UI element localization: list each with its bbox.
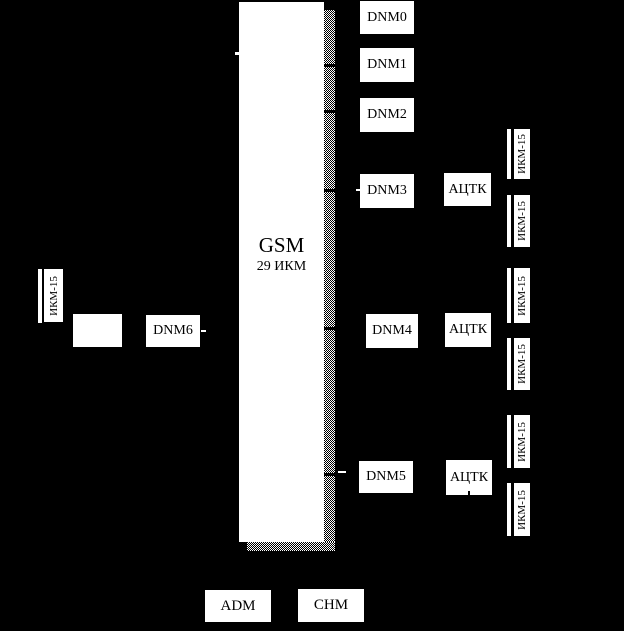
ikm15-label-2: ИКМ-15 <box>516 201 528 241</box>
ikm15-block-4: ИКМ-15 <box>514 338 530 390</box>
actk-block-3: АЦТК <box>446 460 492 495</box>
dnm2-block: DNM2 <box>360 98 414 132</box>
connector-mark-dnm5 <box>324 473 335 476</box>
ikm15-line-6 <box>507 483 511 536</box>
adm-block: ADM <box>205 590 271 622</box>
ikm15-block-1: ИКМ-15 <box>514 129 530 179</box>
block-diagram: GSM 29 ИКМ DNM0 DNM1 DNM2 DNM3 DNM4 DNM5… <box>0 0 624 631</box>
connector-mark-dnm4 <box>324 327 335 330</box>
connector-stub-actk3-bottom <box>468 491 470 496</box>
gsm-title: GSM <box>239 234 324 256</box>
dnm0-block: DNM0 <box>360 1 414 34</box>
connector-mark-dnm1 <box>324 64 335 67</box>
ikm15-line-5 <box>507 415 511 468</box>
ikm15-label-5: ИКМ-15 <box>516 422 528 462</box>
ikm15-label-1: ИКМ-15 <box>516 134 528 174</box>
ikm15-label-6: ИКМ-15 <box>516 490 528 530</box>
dnm1-block: DNM1 <box>360 48 414 82</box>
ikm15-label-3: ИКМ-15 <box>516 276 528 316</box>
unlabeled-block <box>73 314 122 347</box>
ikm15-line-3 <box>507 268 511 323</box>
ikm15-line-left <box>38 269 42 323</box>
gsm-shadow-right <box>324 10 335 551</box>
ikm15-block-left: ИКМ-15 <box>44 269 63 322</box>
ikm15-block-6: ИКМ-15 <box>514 483 530 536</box>
gsm-subtitle: 29 ИКМ <box>239 259 324 274</box>
chm-block: CHM <box>298 589 364 622</box>
connector-mark-dnm2 <box>324 110 335 113</box>
ikm15-label-left: ИКМ-15 <box>48 276 60 316</box>
ikm15-line-4 <box>507 338 511 390</box>
dnm4-block: DNM4 <box>366 314 418 348</box>
connector-stub-gsm-left <box>235 52 239 55</box>
connector-stub-dnm6-right <box>201 330 206 332</box>
ikm15-block-5: ИКМ-15 <box>514 415 530 468</box>
actk-block-1: АЦТК <box>444 173 491 206</box>
dnm3-block: DNM3 <box>360 174 414 208</box>
ikm15-line-1 <box>507 129 511 179</box>
gsm-block: GSM 29 ИКМ <box>239 2 324 542</box>
ikm15-block-3: ИКМ-15 <box>514 268 530 323</box>
dnm5-block: DNM5 <box>359 461 413 493</box>
ikm15-label-4: ИКМ-15 <box>516 344 528 384</box>
connector-mark-dnm3 <box>324 189 335 192</box>
connector-stub-dnm5-left <box>338 471 346 473</box>
ikm15-line-2 <box>507 195 511 247</box>
actk-block-2: АЦТК <box>445 313 491 347</box>
dnm6-block: DNM6 <box>146 315 200 347</box>
gsm-shadow-bottom <box>247 542 335 551</box>
ikm15-block-2: ИКМ-15 <box>514 195 530 247</box>
connector-stub-dnm3-left <box>356 189 360 191</box>
